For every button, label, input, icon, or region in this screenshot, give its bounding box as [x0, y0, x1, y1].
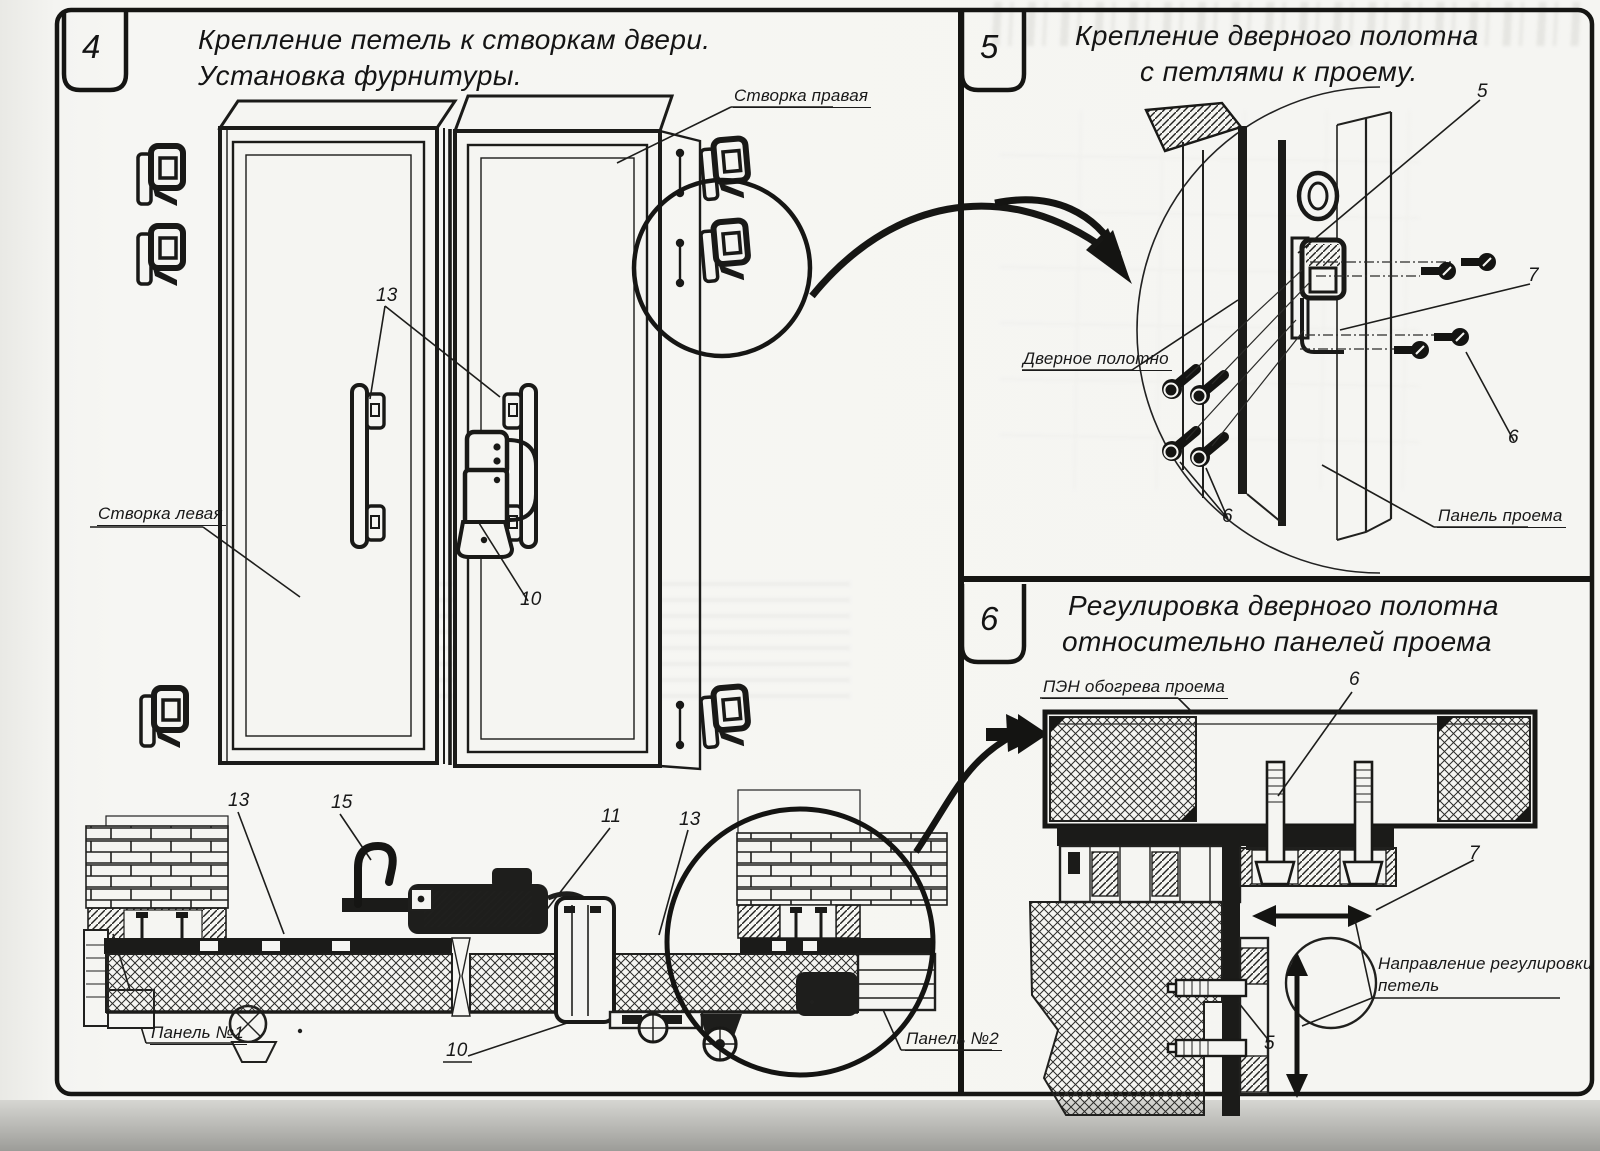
callout-5: 5: [1477, 82, 1488, 101]
panel6-number: 6: [980, 602, 998, 635]
panel6-title-line1: Регулировка дверного полотна: [1068, 588, 1499, 624]
drawing-lineart: [0, 0, 1600, 1151]
callout-6-p6: 6: [1349, 670, 1360, 689]
label-napravlenie-line2: петель: [1378, 976, 1439, 995]
callout-11: 11: [601, 807, 621, 826]
label-pen-obogreva: ПЭН обогрева проема: [1042, 677, 1228, 699]
label-panel-no1: Панель №1: [150, 1023, 247, 1045]
callout-13-bottom-left: 13: [228, 791, 250, 810]
callout-7: 7: [1528, 266, 1539, 285]
callout-6-left: 6: [1222, 507, 1233, 526]
label-panel-proema: Панель проема: [1437, 506, 1566, 528]
panel4-number: 4: [82, 30, 100, 63]
panel4-title-line1: Крепление петель к створкам двери.: [198, 22, 711, 58]
callout-13-top: 13: [376, 286, 398, 305]
callout-10-mid: 10: [520, 590, 542, 609]
callout-15: 15: [331, 793, 353, 812]
label-stvorka-levaya: Створка левая: [97, 504, 226, 526]
callout-6-right: 6: [1508, 428, 1519, 447]
callout-13-bottom-right: 13: [679, 810, 701, 829]
label-stvorka-pravaya: Створка правая: [733, 86, 871, 108]
label-panel-no2: Панель №2: [905, 1029, 1002, 1051]
panel5-number: 5: [980, 30, 998, 63]
scanned-drawing-sheet: 4 5 6 Крепление петель к створкам двери.…: [0, 0, 1600, 1151]
label-napravlenie-line1: Направление регулировки: [1378, 954, 1593, 973]
panel5-title-line2: с петлями к проему.: [1140, 54, 1418, 90]
callout-7-p6: 7: [1469, 844, 1480, 863]
panel5-title-line1: Крепление дверного полотна: [1075, 18, 1479, 54]
panel4-title-line2: Установка фурнитуры.: [198, 58, 522, 94]
callout-5-p6: 5: [1264, 1034, 1275, 1053]
label-dvernoe-polotno: Дверное полотно: [1022, 349, 1172, 371]
callout-10-bottom: 10: [446, 1041, 468, 1060]
panel6-title-line2: относительно панелей проема: [1062, 624, 1492, 660]
